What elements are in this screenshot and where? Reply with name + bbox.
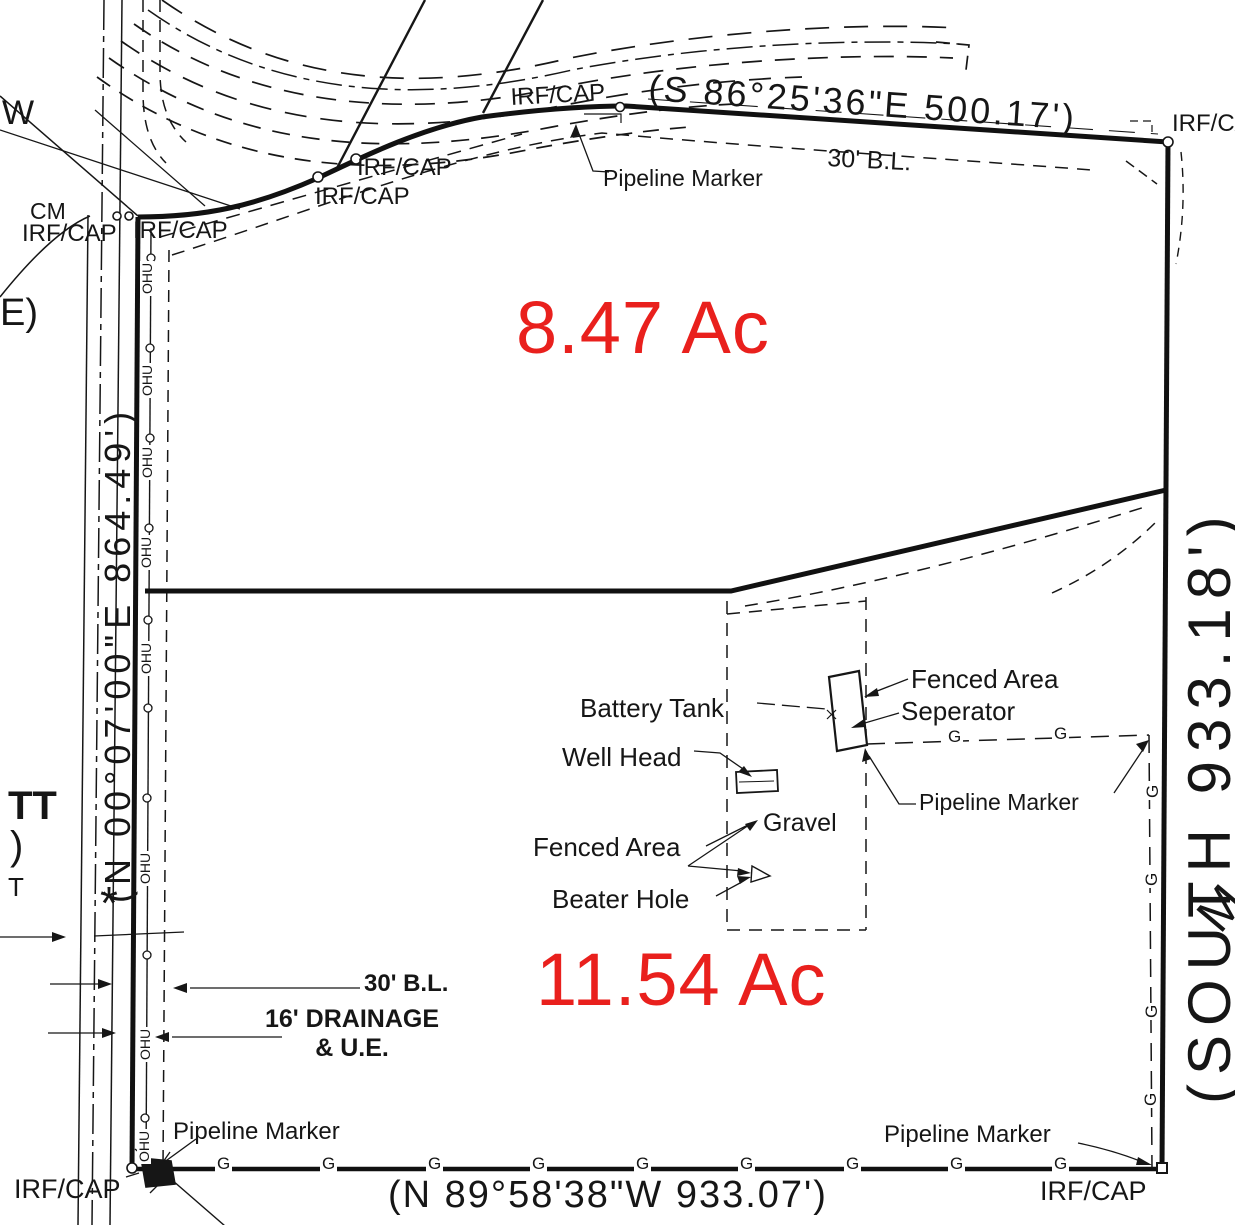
gas-label: G xyxy=(844,1155,861,1172)
bearing-west: (N 00°07'00"E 864.49') xyxy=(100,406,136,903)
gravel-label: Gravel xyxy=(763,811,837,836)
seperator-label: Seperator xyxy=(901,698,1015,724)
street-text-fragment-e: E) xyxy=(0,294,38,332)
site-features xyxy=(688,597,1144,930)
gas-label: G xyxy=(1052,1155,1069,1172)
irf-cap-label-curve-lower: IRF/CAP xyxy=(315,185,410,209)
well-head-label: Well Head xyxy=(562,744,681,770)
divider-offset-lines xyxy=(745,506,1157,606)
building-line-bottom: 30' B.L. xyxy=(364,972,448,996)
gas-label: G xyxy=(1142,1091,1159,1108)
fenced-area-label-left: Fenced Area xyxy=(533,834,680,860)
pipeline-marker-right: Pipeline Marker xyxy=(919,791,1079,814)
road-lines xyxy=(0,0,186,1225)
ohu-label: OHU xyxy=(140,261,154,296)
acreage-south: 11.54 Ac xyxy=(536,943,827,1017)
ohu-label: OHU xyxy=(140,363,154,398)
pipeline-marker-se: Pipeline Marker xyxy=(884,1123,1051,1147)
street-text-fragment-t: T xyxy=(8,874,24,900)
bearing-east: (SOUTH 933.18') xyxy=(1180,507,1235,1104)
irf-cap-label-nw2: IRF/CAP xyxy=(133,219,228,243)
pipeline-marker-top: Pipeline Marker xyxy=(603,167,763,190)
gas-label: G xyxy=(946,728,963,745)
bearing-south: (N 89°58'38"W 933.07') xyxy=(388,1176,828,1214)
irf-cap-label-sw: IRF/CAP xyxy=(14,1176,121,1203)
ohu-label: OHU xyxy=(137,1129,151,1164)
gas-label: G xyxy=(1143,1003,1160,1020)
ohu-label: OHU xyxy=(138,1027,152,1062)
ohu-label: OHU xyxy=(139,641,153,676)
pipeline-marker-sw: Pipeline Marker xyxy=(173,1120,340,1144)
beater-hole-shape xyxy=(751,866,770,882)
fence-top xyxy=(727,601,866,614)
gas-label: G xyxy=(320,1155,337,1172)
diagonal-lines xyxy=(0,0,543,216)
battery-tank-label: Battery Tank xyxy=(580,695,724,721)
gas-label: G xyxy=(1052,725,1069,742)
street-text-fragment-w: W xyxy=(2,96,34,130)
irf-cap-label-se: IRF/CAP xyxy=(1040,1178,1147,1205)
gas-label: G xyxy=(1143,871,1160,888)
gas-label: G xyxy=(634,1155,651,1172)
drainage-easement-label: 16' DRAINAGE & U.E. xyxy=(252,1005,452,1063)
gas-label: G xyxy=(1144,783,1161,800)
building-line-top: 30' B.L. xyxy=(827,146,912,175)
irf-cap-label-ne: IRF/CAP xyxy=(1172,112,1235,136)
ohu-label: OHU xyxy=(140,445,154,480)
gas-label: G xyxy=(215,1155,232,1172)
beater-hole-label: Beater Hole xyxy=(552,886,689,912)
irf-cap-label-curve-upper: IRF/CAP xyxy=(357,156,452,180)
acreage-north: 8.47 Ac xyxy=(516,291,770,365)
irf-cap-label-nw1: IRF/CAP xyxy=(22,222,117,246)
west-building-line xyxy=(163,250,169,1168)
gas-label: G xyxy=(530,1155,547,1172)
survey-plat: W E) TT ) T M * CM IRF/CAP IRF/CAP IRF/C… xyxy=(0,0,1235,1225)
battery-tank-leader xyxy=(757,703,826,709)
gas-label: G xyxy=(738,1155,755,1172)
street-text-fragment-tt: TT xyxy=(8,786,57,826)
parcel-divider xyxy=(145,490,1166,591)
ohu-label: OHU xyxy=(138,851,152,886)
gas-label: G xyxy=(948,1155,965,1172)
band-end-bracket xyxy=(936,42,969,70)
ohu-label: OHU xyxy=(139,535,153,570)
fenced-area-label-right: Fenced Area xyxy=(911,666,1058,692)
gas-label: G xyxy=(426,1155,443,1172)
irf-cap-label-top: IRF/CAP xyxy=(510,81,606,110)
fence-zigzag-leaders xyxy=(688,823,752,871)
street-text-fragment-paren: ) xyxy=(10,826,23,866)
